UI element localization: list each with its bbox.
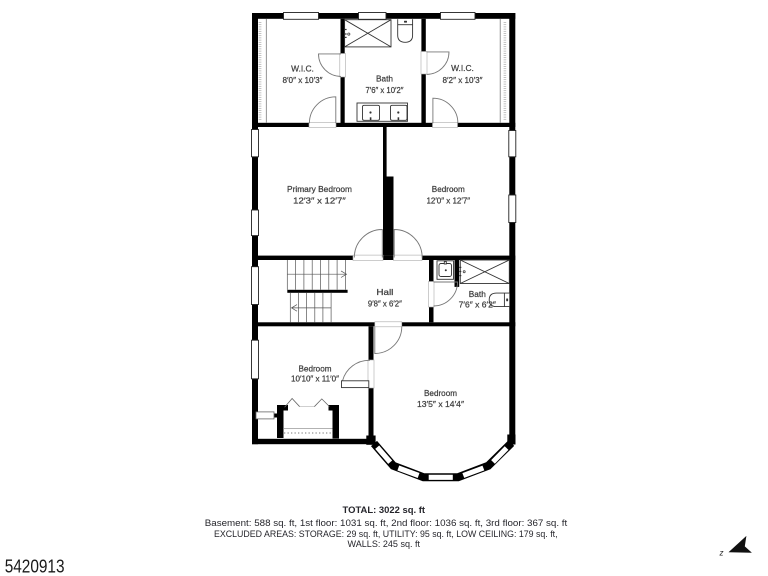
svg-text:W.I.C.: W.I.C. (451, 64, 474, 73)
svg-text:Primary Bedroom: Primary Bedroom (287, 185, 352, 194)
svg-text:Basement: 588 sq. ft, 1st floo: Basement: 588 sq. ft, 1st floor: 1031 sq… (205, 518, 568, 529)
svg-text:Bedroom: Bedroom (432, 185, 465, 194)
svg-text:5420913: 5420913 (5, 557, 65, 576)
svg-text:Hall: Hall (376, 288, 393, 297)
svg-text:13′5″ x 14′4″: 13′5″ x 14′4″ (417, 400, 464, 409)
svg-text:12′0″ x 12′7″: 12′0″ x 12′7″ (426, 196, 470, 205)
svg-text:9′8″ x 6′2″: 9′8″ x 6′2″ (368, 299, 402, 308)
svg-text:Bath: Bath (376, 75, 393, 84)
svg-text:12′3″ x 12′7″: 12′3″ x 12′7″ (293, 196, 346, 205)
svg-text:Bedroom: Bedroom (299, 365, 332, 374)
svg-text:TOTAL: 3022 sq. ft: TOTAL: 3022 sq. ft (343, 505, 426, 516)
svg-text:W.I.C.: W.I.C. (291, 65, 314, 74)
svg-text:8′2″ x 10′3″: 8′2″ x 10′3″ (443, 76, 483, 85)
svg-text:7′6″ x 10′2″: 7′6″ x 10′2″ (366, 86, 404, 95)
svg-text:Bath: Bath (469, 290, 486, 299)
svg-text:Bedroom: Bedroom (424, 389, 457, 398)
svg-text:10′10″ x 11′0″: 10′10″ x 11′0″ (291, 375, 339, 384)
svg-text:WALLS: 245 sq. ft: WALLS: 245 sq. ft (348, 539, 421, 550)
svg-text:8′0″ x 10′3″: 8′0″ x 10′3″ (283, 76, 323, 85)
svg-text:z: z (719, 549, 724, 558)
svg-text:7′6″ x 6′2″: 7′6″ x 6′2″ (459, 301, 496, 310)
